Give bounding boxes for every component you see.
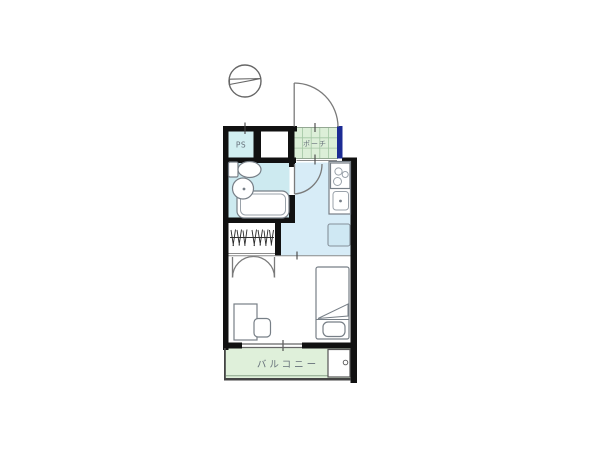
- pillow: [323, 322, 345, 337]
- pipe-space-label: PS: [236, 141, 246, 150]
- toilet: [229, 162, 262, 178]
- floor-plan-drawing: PS ポーチ バルコニー: [0, 0, 600, 450]
- kitchen-counter: [329, 162, 351, 215]
- balcony-window: [242, 344, 302, 348]
- north-arrow-icon: [229, 65, 261, 97]
- stove-burners-icon: [331, 163, 351, 189]
- closet-hanger-rod: [229, 230, 276, 254]
- porch-label: ポーチ: [303, 140, 327, 148]
- balcony-rail-left: [224, 348, 226, 381]
- floor-plan-canvas: PS ポーチ バルコニー: [0, 0, 600, 450]
- balcony-rail-bottom: [224, 378, 351, 381]
- washbasin: [233, 178, 254, 199]
- bed: [316, 267, 349, 339]
- wall-bottom-right: [302, 343, 351, 349]
- kitchen-hall-floor: [281, 223, 296, 256]
- wall-closet-porch: [288, 126, 295, 163]
- wall-bottom-left: [223, 343, 242, 349]
- entrance-gate-door: [294, 83, 338, 127]
- wall-ps-closet: [254, 126, 262, 163]
- entrance-accent-bar: [337, 126, 343, 159]
- washing-machine-pan: [328, 350, 350, 378]
- wall-right: [351, 158, 358, 384]
- wall-closet-right: [275, 223, 281, 256]
- balcony-label: バルコニー: [257, 360, 319, 371]
- chair: [254, 319, 271, 338]
- closet-double-doors: [233, 257, 275, 278]
- appliance-space: [328, 224, 350, 246]
